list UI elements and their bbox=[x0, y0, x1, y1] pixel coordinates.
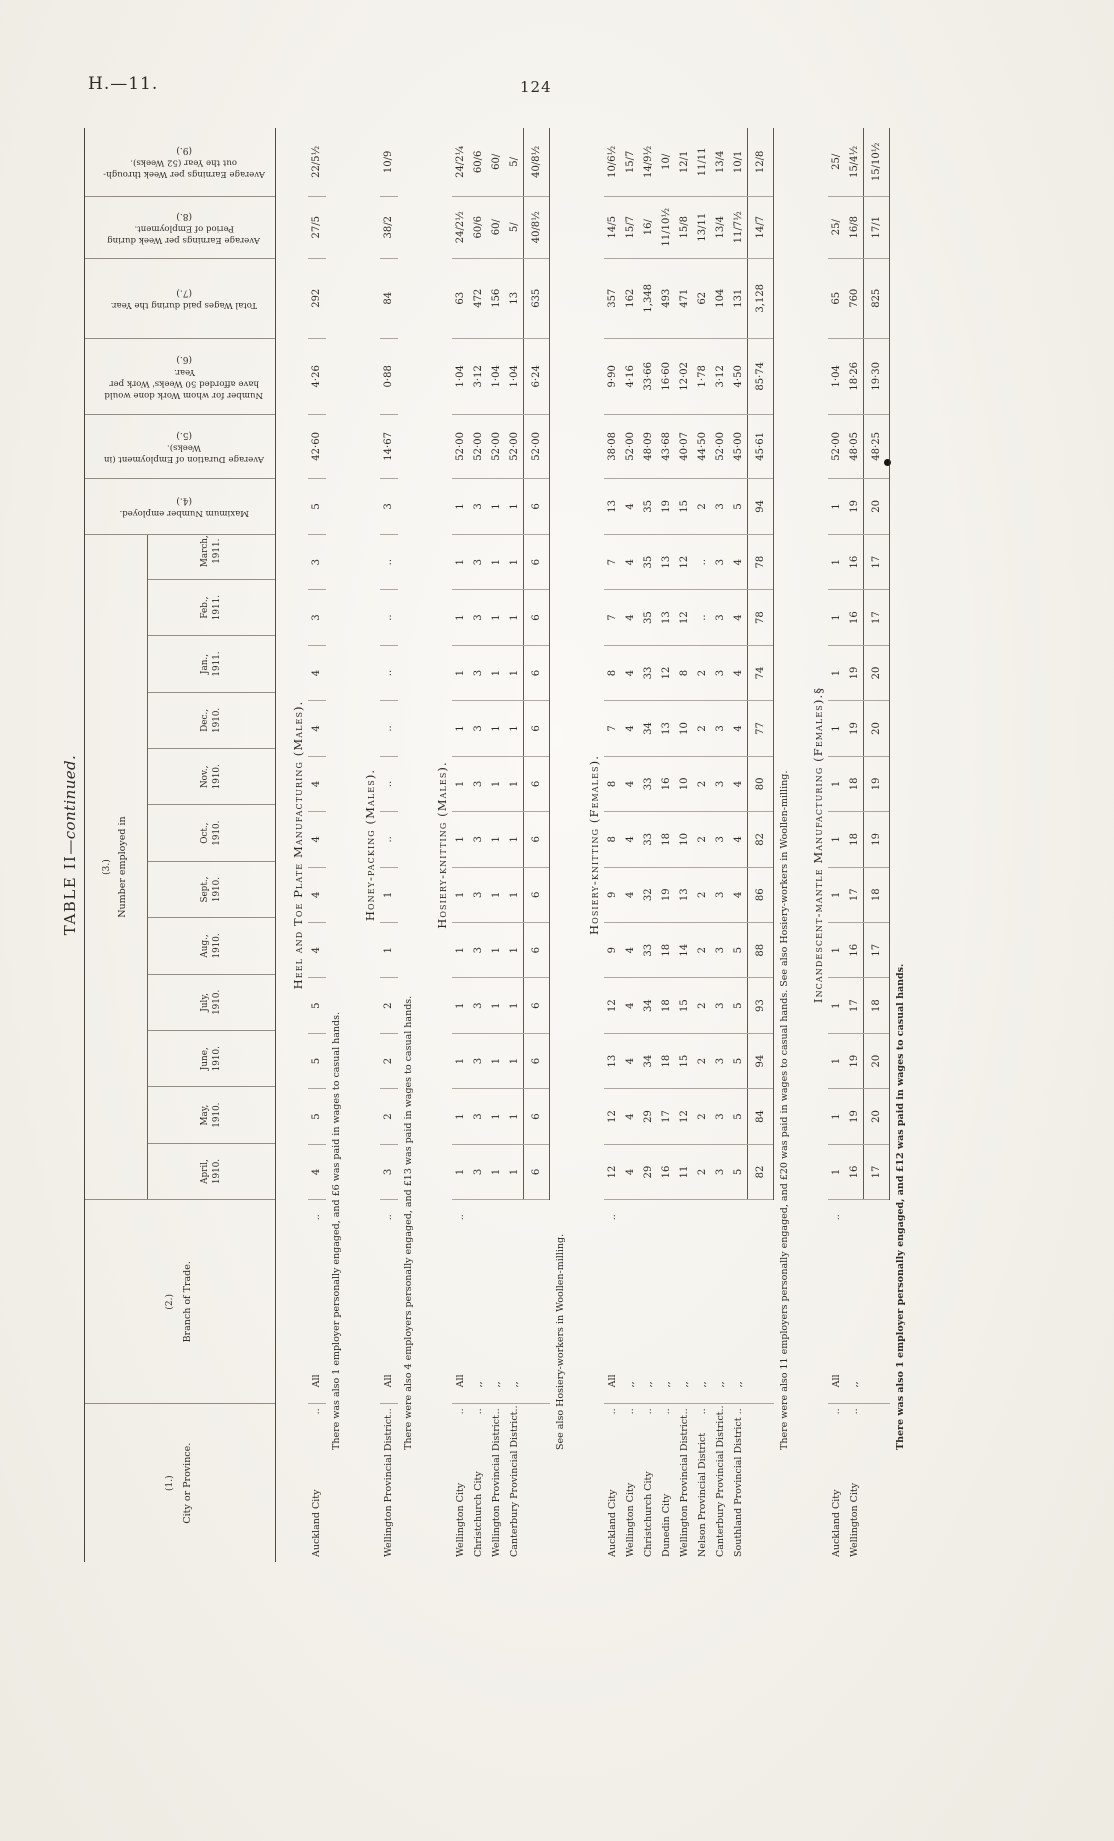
duration-cell: 52·00 bbox=[488, 414, 506, 478]
column-number: (3.) bbox=[102, 535, 112, 1199]
month-value: 20 bbox=[864, 1089, 890, 1144]
city-name: Nelson Provincial District bbox=[697, 1433, 708, 1557]
branch-value: ,, bbox=[715, 1381, 726, 1387]
month-value: 12 bbox=[604, 1089, 622, 1144]
month-value: 17 bbox=[864, 1144, 890, 1199]
month-value: 19 bbox=[658, 867, 676, 922]
month-value: 33 bbox=[640, 756, 658, 811]
fifty-weeks-cell: 6·24 bbox=[524, 338, 550, 414]
month-value: 4 bbox=[308, 701, 326, 756]
month-value: 35 bbox=[640, 534, 658, 589]
branch-value: All bbox=[607, 1374, 618, 1387]
earnings-period-cell: 38/2 bbox=[380, 196, 398, 258]
month-value: 2 bbox=[380, 1033, 398, 1088]
month-value: 14 bbox=[676, 923, 694, 978]
table-row: Canterbury Provincial District..,,333333… bbox=[712, 128, 730, 1562]
month-value: 4 bbox=[308, 645, 326, 700]
month-year: 1910. bbox=[212, 877, 222, 902]
month-value: 12 bbox=[676, 590, 694, 645]
section-title-row: Honey-packing (Males). bbox=[348, 128, 380, 1562]
month-value: 7 bbox=[604, 534, 622, 589]
month-value: .. bbox=[694, 590, 712, 645]
max-cell: 20 bbox=[864, 478, 890, 534]
section-note-row: There were also 4 employers personally e… bbox=[398, 128, 420, 1562]
duration-cell: 52·00 bbox=[622, 414, 640, 478]
branch-cell: ,, bbox=[730, 1200, 748, 1404]
month-value: 1 bbox=[506, 590, 524, 645]
city-name: Wellington City bbox=[849, 1483, 860, 1557]
max-cell: 6 bbox=[524, 478, 550, 534]
month-value: 1 bbox=[488, 978, 506, 1033]
earnings-year-cell: 11/11 bbox=[694, 128, 712, 196]
earnings-year-cell: 25/ bbox=[828, 128, 846, 196]
dotted-leader: .. bbox=[509, 1405, 520, 1411]
dotted-leader: .. bbox=[607, 1408, 618, 1414]
month-value: 5 bbox=[730, 1144, 748, 1199]
max-cell: 35 bbox=[640, 478, 658, 534]
month-value: 12 bbox=[658, 645, 676, 700]
month-value: 17 bbox=[864, 534, 890, 589]
fifty-weeks-cell: 12·02 bbox=[676, 338, 694, 414]
month-value: 19 bbox=[846, 1033, 864, 1088]
vertical-heading: Average Earnings per Week through-out th… bbox=[98, 144, 270, 179]
city-name: Auckland City bbox=[607, 1490, 618, 1557]
city-cell: Wellington Provincial District.. bbox=[380, 1404, 398, 1562]
month-value: 13 bbox=[658, 590, 676, 645]
month-value: 3 bbox=[712, 812, 730, 867]
branch-value: ,, bbox=[625, 1381, 636, 1387]
wages-cell: 1,348 bbox=[640, 258, 658, 338]
month-value: 6 bbox=[524, 978, 550, 1033]
month-value: 17 bbox=[864, 590, 890, 645]
column-number: (2.) bbox=[165, 1200, 175, 1403]
section-title: Heel and Toe Plate Manufacturing (Males)… bbox=[276, 128, 308, 1562]
month-header-row: April,1910.May,1910.June,1910.July,1910.… bbox=[147, 535, 275, 1199]
month-header: May,1910. bbox=[148, 1087, 275, 1143]
month-value: 1 bbox=[488, 1033, 506, 1088]
month-value: 2 bbox=[694, 923, 712, 978]
month-value: 3 bbox=[712, 590, 730, 645]
month-value: 5 bbox=[308, 1089, 326, 1144]
section-title: Incandescent-mantle Manufacturing (Femal… bbox=[796, 128, 828, 1562]
city-cell: Auckland City.. bbox=[828, 1404, 846, 1562]
fifty-weeks-cell: 18·26 bbox=[846, 338, 864, 414]
city-name: Wellington Provincial District bbox=[679, 1415, 690, 1557]
city-name: Christchurch City bbox=[473, 1471, 484, 1557]
wages-cell: 3,128 bbox=[748, 258, 774, 338]
fifty-weeks-cell: 19·30 bbox=[864, 338, 890, 414]
month-value: 1 bbox=[452, 701, 470, 756]
month-name: Feb., bbox=[200, 597, 210, 619]
earnings-period-cell: 13/4 bbox=[712, 196, 730, 258]
month-value: 3 bbox=[712, 645, 730, 700]
month-value: 4 bbox=[730, 701, 748, 756]
branch-value: ,, bbox=[679, 1381, 690, 1387]
month-value: 1 bbox=[488, 756, 506, 811]
city-cell: Auckland City.. bbox=[308, 1404, 326, 1562]
month-value: 1 bbox=[452, 534, 470, 589]
month-name: Jan., bbox=[200, 654, 210, 674]
month-value: 4 bbox=[622, 701, 640, 756]
earnings-year-cell: 13/4 bbox=[712, 128, 730, 196]
month-value: 17 bbox=[846, 978, 864, 1033]
earnings-period-cell: 11/10½ bbox=[658, 196, 676, 258]
header-city-or-province: (1.) City or Province. bbox=[85, 1404, 276, 1562]
month-value: 4 bbox=[730, 867, 748, 922]
month-value: 1 bbox=[828, 867, 846, 922]
month-header: Oct.,1910. bbox=[148, 805, 275, 861]
dotted-leader: .. bbox=[473, 1408, 484, 1414]
month-value: 1 bbox=[828, 1033, 846, 1088]
month-value: 34 bbox=[640, 978, 658, 1033]
dotted-leader: .. bbox=[661, 1408, 672, 1414]
month-value: 1 bbox=[506, 978, 524, 1033]
dotted-leader: .. bbox=[831, 1214, 842, 1220]
dotted-leader: .. bbox=[383, 1214, 394, 1220]
max-cell: 1 bbox=[488, 478, 506, 534]
month-value: 1 bbox=[452, 1033, 470, 1088]
month-value: 2 bbox=[694, 1089, 712, 1144]
month-value: 86 bbox=[748, 867, 774, 922]
month-value: 1 bbox=[828, 534, 846, 589]
month-value: 4 bbox=[308, 812, 326, 867]
month-value: 8 bbox=[676, 645, 694, 700]
fifty-weeks-cell: 1·04 bbox=[828, 338, 846, 414]
fifty-weeks-cell: 4·50 bbox=[730, 338, 748, 414]
city-cell: Wellington City.. bbox=[452, 1404, 470, 1562]
city-name: Dunedin City bbox=[661, 1494, 672, 1557]
city-cell bbox=[864, 1404, 890, 1562]
month-name: Dec., bbox=[200, 709, 210, 732]
month-value: 1 bbox=[506, 701, 524, 756]
month-value: 82 bbox=[748, 812, 774, 867]
wages-cell: 13 bbox=[506, 258, 524, 338]
dotted-leader: .. bbox=[491, 1408, 502, 1414]
month-value: 20 bbox=[864, 701, 890, 756]
section-title: Hosiery-knitting (Females). bbox=[572, 128, 604, 1562]
month-value: 3 bbox=[712, 756, 730, 811]
dotted-leader: .. bbox=[849, 1408, 860, 1414]
duration-cell: 48·05 bbox=[846, 414, 864, 478]
earnings-year-cell: 14/9½ bbox=[640, 128, 658, 196]
month-year: 1910. bbox=[212, 764, 222, 789]
month-value: 78 bbox=[748, 534, 774, 589]
month-value: 16 bbox=[658, 1144, 676, 1199]
month-value: 17 bbox=[658, 1089, 676, 1144]
month-value: 6 bbox=[524, 1144, 550, 1199]
city-cell: Wellington City.. bbox=[622, 1404, 640, 1562]
month-value: 2 bbox=[694, 645, 712, 700]
month-value: 6 bbox=[524, 756, 550, 811]
earnings-period-cell: 15/8 bbox=[676, 196, 694, 258]
month-value: 4 bbox=[622, 923, 640, 978]
city-cell: Southland Provincial District.. bbox=[730, 1404, 748, 1562]
table-row: Wellington Provincial District..,,111215… bbox=[676, 128, 694, 1562]
max-cell: 1 bbox=[506, 478, 524, 534]
city-cell: Wellington City.. bbox=[846, 1404, 864, 1562]
month-value: 93 bbox=[748, 978, 774, 1033]
earnings-period-cell: 24/2½ bbox=[452, 196, 470, 258]
month-value: .. bbox=[380, 812, 398, 867]
header-earnings-year: Average Earnings per Week through-out th… bbox=[85, 128, 276, 196]
max-cell: 13 bbox=[604, 478, 622, 534]
month-value: .. bbox=[380, 756, 398, 811]
month-value: 5 bbox=[730, 1033, 748, 1088]
month-value: 80 bbox=[748, 756, 774, 811]
month-value: 88 bbox=[748, 923, 774, 978]
max-cell: 5 bbox=[308, 478, 326, 534]
month-name: March, bbox=[200, 535, 210, 567]
max-cell: 1 bbox=[452, 478, 470, 534]
max-cell: 15 bbox=[676, 478, 694, 534]
month-header: Sept.,1910. bbox=[148, 862, 275, 918]
section-note: There were also 11 employers personally … bbox=[774, 128, 796, 1562]
month-value: 1 bbox=[488, 701, 506, 756]
earnings-year-cell: 60/ bbox=[488, 128, 506, 196]
earnings-period-cell: 27/5 bbox=[308, 196, 326, 258]
max-cell: 19 bbox=[658, 478, 676, 534]
month-value: 18 bbox=[658, 978, 676, 1033]
dotted-leader: .. bbox=[311, 1214, 322, 1220]
dotted-leader: .. bbox=[455, 1214, 466, 1220]
month-value: 18 bbox=[846, 756, 864, 811]
duration-cell: 14·67 bbox=[380, 414, 398, 478]
city-cell: Dunedin City.. bbox=[658, 1404, 676, 1562]
column-number: (7.) bbox=[98, 286, 270, 298]
city-cell: Canterbury Provincial District.. bbox=[506, 1404, 524, 1562]
month-name: Aug., bbox=[200, 934, 210, 957]
month-value: 1 bbox=[452, 590, 470, 645]
column-label: Maximum Number employed. bbox=[98, 507, 270, 519]
month-value: 29 bbox=[640, 1089, 658, 1144]
earnings-year-cell: 10/9 bbox=[380, 128, 398, 196]
month-header: Dec.,1910. bbox=[148, 693, 275, 749]
month-value: 1 bbox=[452, 1089, 470, 1144]
month-year: 1910. bbox=[212, 990, 222, 1015]
scanned-report-page: { "page": { "doc_ref": "H.—11.", "page_n… bbox=[0, 0, 1114, 1841]
table-row: Nelson Provincial District..,,2222222222… bbox=[694, 128, 712, 1562]
wages-cell: 472 bbox=[470, 258, 488, 338]
city-name: Auckland City bbox=[311, 1490, 322, 1557]
duration-cell: 42·60 bbox=[308, 414, 326, 478]
section-note: See also Hosiery-workers in Woollen-mill… bbox=[550, 128, 572, 1562]
month-value: 4 bbox=[730, 812, 748, 867]
branch-cell: ,, bbox=[712, 1200, 730, 1404]
month-value: .. bbox=[694, 534, 712, 589]
section-note: There was also 1 employer personally eng… bbox=[890, 128, 912, 1562]
month-value: 78 bbox=[748, 590, 774, 645]
duration-cell: 45·00 bbox=[730, 414, 748, 478]
month-value: 15 bbox=[676, 1033, 694, 1088]
month-value: 4 bbox=[622, 756, 640, 811]
month-value: 32 bbox=[640, 867, 658, 922]
month-value: 20 bbox=[864, 1033, 890, 1088]
month-value: 33 bbox=[640, 923, 658, 978]
wages-cell: 162 bbox=[622, 258, 640, 338]
month-value: 1 bbox=[380, 867, 398, 922]
month-name: Nov., bbox=[200, 766, 210, 789]
duration-cell: 48·25 bbox=[864, 414, 890, 478]
max-cell: 3 bbox=[712, 478, 730, 534]
month-value: 4 bbox=[730, 645, 748, 700]
dotted-leader: .. bbox=[733, 1408, 744, 1414]
month-value: 5 bbox=[308, 978, 326, 1033]
section-title-row: Heel and Toe Plate Manufacturing (Males)… bbox=[276, 128, 308, 1562]
month-value: 1 bbox=[452, 923, 470, 978]
city-cell: Auckland City.. bbox=[604, 1404, 622, 1562]
month-value: 3 bbox=[712, 1089, 730, 1144]
max-cell: 19 bbox=[846, 478, 864, 534]
month-value: 16 bbox=[846, 590, 864, 645]
duration-cell: 40·07 bbox=[676, 414, 694, 478]
duration-cell: 52·00 bbox=[712, 414, 730, 478]
month-value: 1 bbox=[452, 756, 470, 811]
branch-value: All bbox=[383, 1374, 394, 1387]
duration-cell: 43·68 bbox=[658, 414, 676, 478]
month-value: 1 bbox=[828, 923, 846, 978]
section-title-row: Hosiery-knitting (Males). bbox=[420, 128, 452, 1562]
duration-cell: 44·50 bbox=[694, 414, 712, 478]
column-number: (9.) bbox=[98, 144, 270, 156]
earnings-year-cell: 10/6½ bbox=[604, 128, 622, 196]
month-value: 4 bbox=[730, 756, 748, 811]
column-label: Average Earnings per Week during Period … bbox=[98, 222, 270, 245]
month-value: 82 bbox=[748, 1144, 774, 1199]
max-cell: 94 bbox=[748, 478, 774, 534]
header-row: (1.) City or Province. (2.) Branch of Tr… bbox=[85, 128, 276, 1562]
month-value: 1 bbox=[828, 1144, 846, 1199]
table-row: Auckland City..All..455544444433542·604·… bbox=[308, 128, 326, 1562]
earnings-period-cell: 15/7 bbox=[622, 196, 640, 258]
branch-cell: ,, bbox=[470, 1200, 488, 1404]
month-value: 3 bbox=[470, 1089, 488, 1144]
month-value: 29 bbox=[640, 1144, 658, 1199]
month-value: 19 bbox=[864, 812, 890, 867]
fifty-weeks-cell: 16·60 bbox=[658, 338, 676, 414]
month-value: 34 bbox=[640, 1033, 658, 1088]
section-title: Hosiery-knitting (Males). bbox=[420, 128, 452, 1562]
earnings-year-cell: 10/1 bbox=[730, 128, 748, 196]
earnings-period-cell: 13/11 bbox=[694, 196, 712, 258]
month-value: 9 bbox=[604, 923, 622, 978]
month-value: 18 bbox=[658, 812, 676, 867]
city-name: Wellington Provincial District bbox=[491, 1415, 502, 1557]
month-value: 3 bbox=[470, 812, 488, 867]
table-title: TABLE II—continued. bbox=[54, 126, 84, 1564]
month-value: 1 bbox=[380, 923, 398, 978]
earnings-period-cell: 11/7½ bbox=[730, 196, 748, 258]
month-value: 1 bbox=[488, 1089, 506, 1144]
city-name: Wellington Provincial District bbox=[383, 1415, 394, 1557]
month-year: 1910. bbox=[212, 1046, 222, 1071]
month-value: 17 bbox=[846, 867, 864, 922]
header-branch-of-trade: (2.) Branch of Trade. bbox=[85, 1200, 276, 1404]
column-number: (5.) bbox=[98, 429, 270, 441]
month-value: 10 bbox=[676, 812, 694, 867]
branch-value: ,, bbox=[733, 1381, 744, 1387]
month-value: 1 bbox=[488, 923, 506, 978]
branch-cell bbox=[748, 1200, 774, 1404]
month-value: 1 bbox=[488, 590, 506, 645]
month-value: 18 bbox=[658, 923, 676, 978]
table-row: Auckland City..All..12121312998878771338… bbox=[604, 128, 622, 1562]
section-note-row: There was also 1 employer personally eng… bbox=[326, 128, 348, 1562]
earnings-period-cell: 60/ bbox=[488, 196, 506, 258]
month-value: 1 bbox=[506, 534, 524, 589]
earnings-period-cell: 16/ bbox=[640, 196, 658, 258]
month-value: 1 bbox=[506, 867, 524, 922]
month-value: 4 bbox=[622, 590, 640, 645]
month-value: 1 bbox=[828, 978, 846, 1033]
section-title-row: Hosiery-knitting (Females). bbox=[572, 128, 604, 1562]
fifty-weeks-cell: 1·04 bbox=[452, 338, 470, 414]
month-value: 1 bbox=[828, 756, 846, 811]
fifty-weeks-cell: 33·66 bbox=[640, 338, 658, 414]
branch-cell: ,, bbox=[622, 1200, 640, 1404]
month-value: 12 bbox=[676, 1089, 694, 1144]
month-value: 1 bbox=[506, 645, 524, 700]
column-label: Branch of Trade. bbox=[182, 1200, 195, 1403]
earnings-year-cell: 24/2¼ bbox=[452, 128, 470, 196]
month-year: 1911. bbox=[212, 539, 222, 564]
rotated-table-area: TABLE II—continued. (1.) City or Provinc… bbox=[54, 126, 934, 1564]
table-row: Christchurch City..,,333333333333352·003… bbox=[470, 128, 488, 1562]
column-label: Number for whom Work done would have aff… bbox=[98, 365, 270, 400]
wages-cell: 357 bbox=[604, 258, 622, 338]
header-total-wages: Total Wages paid during the Year. (7.) bbox=[85, 258, 276, 338]
earnings-period-cell: 17/1 bbox=[864, 196, 890, 258]
table-title-main: TABLE II bbox=[61, 855, 79, 936]
month-value: 20 bbox=[864, 645, 890, 700]
month-header: Jan.,1911. bbox=[148, 636, 275, 692]
column-label: Number employed in bbox=[117, 535, 130, 1199]
month-value: 4 bbox=[622, 1033, 640, 1088]
month-value: 1 bbox=[488, 867, 506, 922]
wages-cell: 493 bbox=[658, 258, 676, 338]
month-value: 3 bbox=[712, 923, 730, 978]
city-cell: Canterbury Provincial District.. bbox=[712, 1404, 730, 1562]
dotted-leader: .. bbox=[643, 1408, 654, 1414]
fifty-weeks-cell: 3·12 bbox=[470, 338, 488, 414]
month-year: 1910. bbox=[212, 708, 222, 733]
city-cell bbox=[748, 1404, 774, 1562]
wages-cell: 62 bbox=[694, 258, 712, 338]
header-fifty-weeks-work: Number for whom Work done would have aff… bbox=[85, 338, 276, 414]
earnings-year-cell: 12/8 bbox=[748, 128, 774, 196]
month-value: 3 bbox=[470, 978, 488, 1033]
month-header: July,1910. bbox=[148, 975, 275, 1031]
month-value: 17 bbox=[864, 923, 890, 978]
month-header: Feb.,1911. bbox=[148, 580, 275, 636]
branch-cell: All.. bbox=[380, 1200, 398, 1404]
month-header: March,1911. bbox=[148, 524, 275, 580]
table-title-continued: —continued. bbox=[61, 755, 79, 855]
month-value: 3 bbox=[470, 1144, 488, 1199]
month-value: 13 bbox=[658, 534, 676, 589]
city-name: Wellington City bbox=[625, 1483, 636, 1557]
table-row: Wellington City..,,444444444444452·004·1… bbox=[622, 128, 640, 1562]
month-value: 3 bbox=[470, 534, 488, 589]
fifty-weeks-cell: 1·04 bbox=[488, 338, 506, 414]
column-label: Average Earnings per Week through-out th… bbox=[98, 156, 270, 179]
month-value: .. bbox=[380, 590, 398, 645]
month-value: 6 bbox=[524, 701, 550, 756]
city-cell: Wellington Provincial District.. bbox=[676, 1404, 694, 1562]
column-label: Average Duration of Employment (in Weeks… bbox=[98, 441, 270, 464]
section-title: Honey-packing (Males). bbox=[348, 128, 380, 1562]
month-value: 1 bbox=[506, 923, 524, 978]
city-name: Southland Provincial District bbox=[733, 1417, 744, 1557]
